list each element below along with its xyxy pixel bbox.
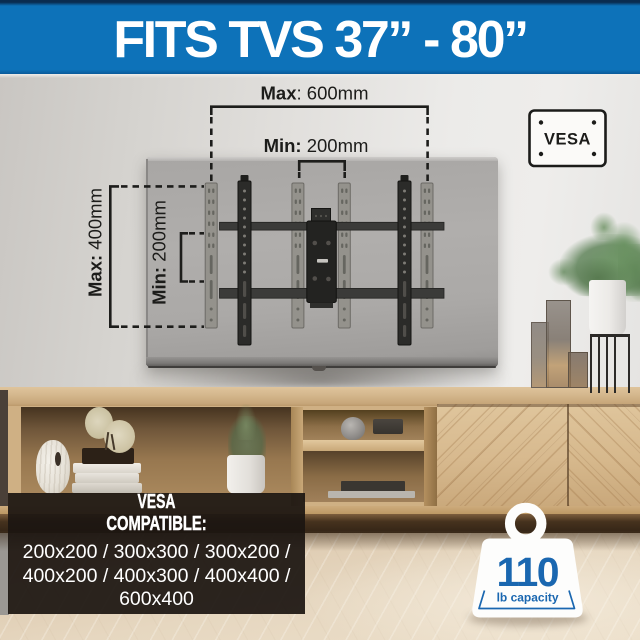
svg-text:110: 110 bbox=[496, 549, 558, 595]
svg-text:VESA: VESA bbox=[544, 131, 591, 149]
svg-text:Min: 200mm: Min: 200mm bbox=[149, 200, 170, 305]
svg-text:Max: 600mm: Max: 600mm bbox=[261, 83, 369, 104]
svg-text:Min: 200mm: Min: 200mm bbox=[264, 135, 369, 156]
svg-text:Max: 400mm: Max: 400mm bbox=[85, 188, 106, 297]
svg-text:lb capacity: lb capacity bbox=[497, 591, 559, 605]
